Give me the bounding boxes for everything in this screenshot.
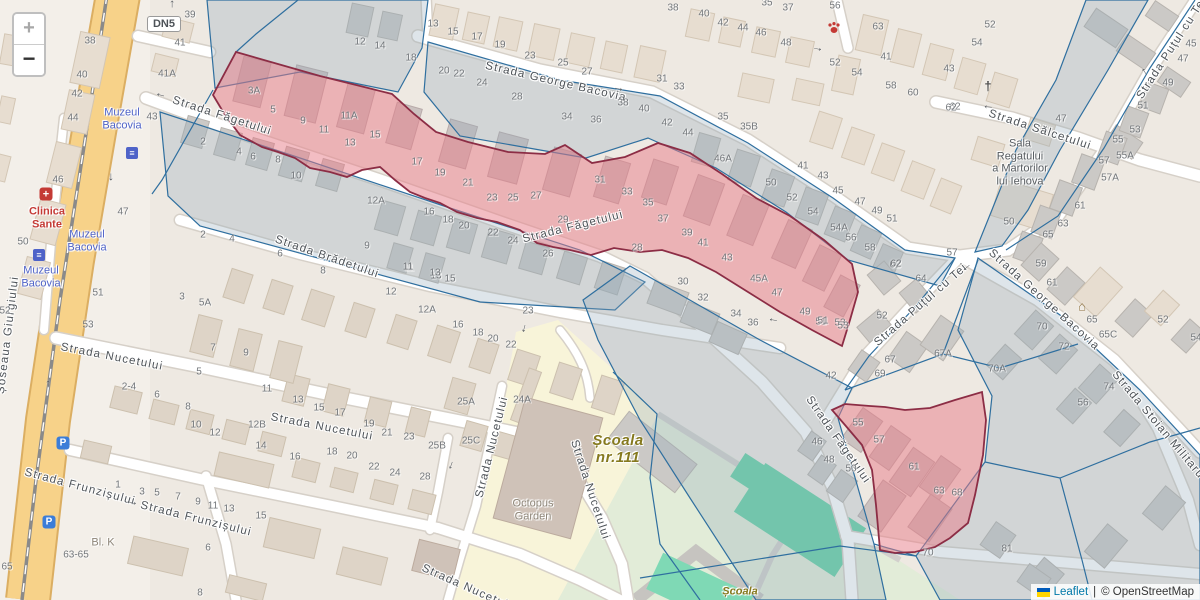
zoom-control: + −	[12, 12, 46, 77]
zoom-in-button[interactable]: +	[14, 14, 44, 45]
zoom-out-button[interactable]: −	[14, 45, 44, 75]
ukraine-flag-icon	[1037, 588, 1050, 597]
map-canvas[interactable]: Strada FăgetuluiStrada FăgetuluiStrada F…	[0, 0, 1200, 600]
map-tiles	[0, 0, 1200, 600]
road-ref-badge: DN5	[147, 16, 181, 32]
leaflet-link[interactable]: Leaflet	[1054, 586, 1089, 598]
openstreetmap-link[interactable]: © OpenStreetMap	[1101, 586, 1194, 598]
attribution-separator: |	[1093, 586, 1096, 598]
attribution-bar: Leaflet | © OpenStreetMap	[1031, 584, 1200, 600]
